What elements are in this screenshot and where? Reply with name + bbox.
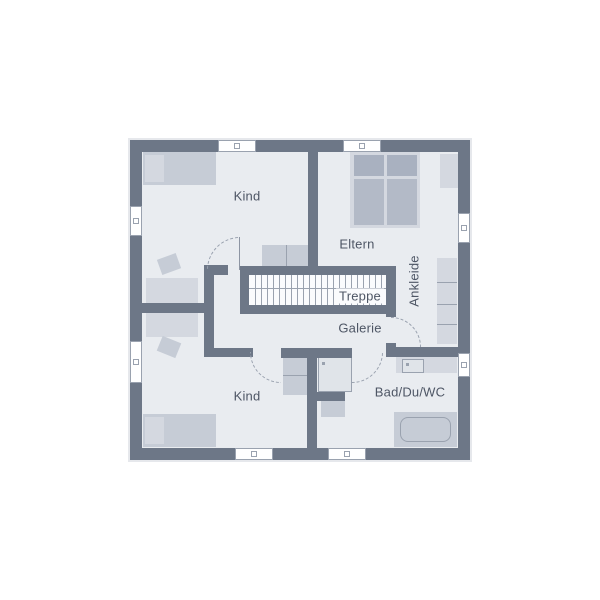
window-handle bbox=[133, 359, 139, 365]
wall bbox=[240, 266, 396, 275]
door-arc-kind-bottom bbox=[250, 352, 281, 383]
bed-pillow bbox=[145, 155, 164, 182]
stair-step-line bbox=[321, 274, 322, 305]
washbasin-dot bbox=[406, 363, 409, 366]
door-arc-ankleide bbox=[391, 317, 421, 347]
window bbox=[458, 213, 470, 243]
double-bed-mattress bbox=[354, 179, 384, 225]
wall bbox=[130, 448, 470, 460]
window-handle bbox=[251, 451, 257, 457]
room-label-kind-bottom: Kind bbox=[234, 389, 261, 404]
stair-step-line bbox=[285, 274, 286, 305]
wall bbox=[386, 266, 396, 317]
desk bbox=[146, 278, 198, 303]
wall bbox=[308, 152, 318, 266]
wardrobe-line bbox=[437, 282, 457, 283]
wall bbox=[130, 140, 470, 152]
bathtub-inner bbox=[400, 417, 451, 442]
wc bbox=[321, 401, 345, 417]
wall bbox=[307, 357, 317, 448]
stair-step-line bbox=[297, 274, 298, 305]
wall bbox=[396, 347, 458, 357]
wardrobe-line bbox=[437, 324, 457, 325]
door-arc-bad bbox=[352, 352, 383, 383]
door-swing-circle bbox=[250, 352, 281, 383]
stair-step-line bbox=[309, 274, 310, 305]
stair-step-line bbox=[327, 274, 328, 305]
window bbox=[130, 341, 142, 383]
wall bbox=[248, 305, 396, 314]
room-label-eltern: Eltern bbox=[339, 237, 374, 252]
room-label-treppe: Treppe bbox=[336, 289, 384, 304]
window bbox=[130, 206, 142, 236]
shower-dot bbox=[322, 362, 325, 365]
window-handle bbox=[234, 143, 240, 149]
stair-step-line bbox=[279, 274, 280, 305]
door-swing-circle bbox=[391, 317, 421, 347]
washbasin bbox=[402, 359, 424, 373]
wall bbox=[458, 140, 470, 460]
wardrobe-line bbox=[437, 304, 457, 305]
stair-step-line bbox=[273, 274, 274, 305]
door-leaf bbox=[239, 237, 240, 270]
bed-pillow bbox=[145, 417, 164, 444]
window-handle bbox=[461, 362, 467, 368]
wall bbox=[317, 392, 345, 401]
window bbox=[328, 448, 366, 460]
window-handle bbox=[133, 218, 139, 224]
wardrobe-line bbox=[283, 375, 307, 376]
wardrobe bbox=[283, 357, 307, 395]
sideboard-line bbox=[286, 245, 287, 266]
door-arc-kind-top bbox=[207, 237, 240, 270]
room-label-bad-du-wc: Bad/Du/WC bbox=[375, 385, 445, 400]
wall bbox=[204, 348, 253, 357]
window bbox=[235, 448, 273, 460]
window bbox=[218, 140, 256, 152]
window bbox=[458, 353, 470, 377]
stair-step-line bbox=[303, 274, 304, 305]
floor-plan-drawing bbox=[0, 0, 600, 600]
double-bed-mattress bbox=[387, 179, 417, 225]
room-label-kind-top: Kind bbox=[234, 189, 261, 204]
wardrobe bbox=[437, 258, 457, 344]
double-bed-pillow bbox=[354, 155, 384, 176]
room-label-galerie: Galerie bbox=[338, 321, 381, 336]
desk bbox=[146, 312, 198, 337]
window-handle bbox=[344, 451, 350, 457]
door-swing-circle bbox=[207, 237, 240, 270]
stair-step-line bbox=[333, 274, 334, 305]
stair-step-line bbox=[255, 274, 256, 305]
double-bed-pillow bbox=[387, 155, 417, 176]
stair-step-line bbox=[291, 274, 292, 305]
stair-step-line bbox=[261, 274, 262, 305]
wall bbox=[130, 140, 142, 460]
stair-step-line bbox=[267, 274, 268, 305]
wall bbox=[240, 266, 249, 314]
stair-step-line bbox=[315, 274, 316, 305]
window bbox=[343, 140, 381, 152]
wall bbox=[142, 303, 214, 313]
nightstand bbox=[440, 154, 458, 188]
window-handle bbox=[461, 225, 467, 231]
window-handle bbox=[359, 143, 365, 149]
door-swing-circle bbox=[352, 352, 383, 383]
floor-plan-image: Kind Eltern Treppe Galerie Ankleide Kind… bbox=[0, 0, 600, 600]
room-label-ankleide: Ankleide bbox=[407, 255, 422, 306]
